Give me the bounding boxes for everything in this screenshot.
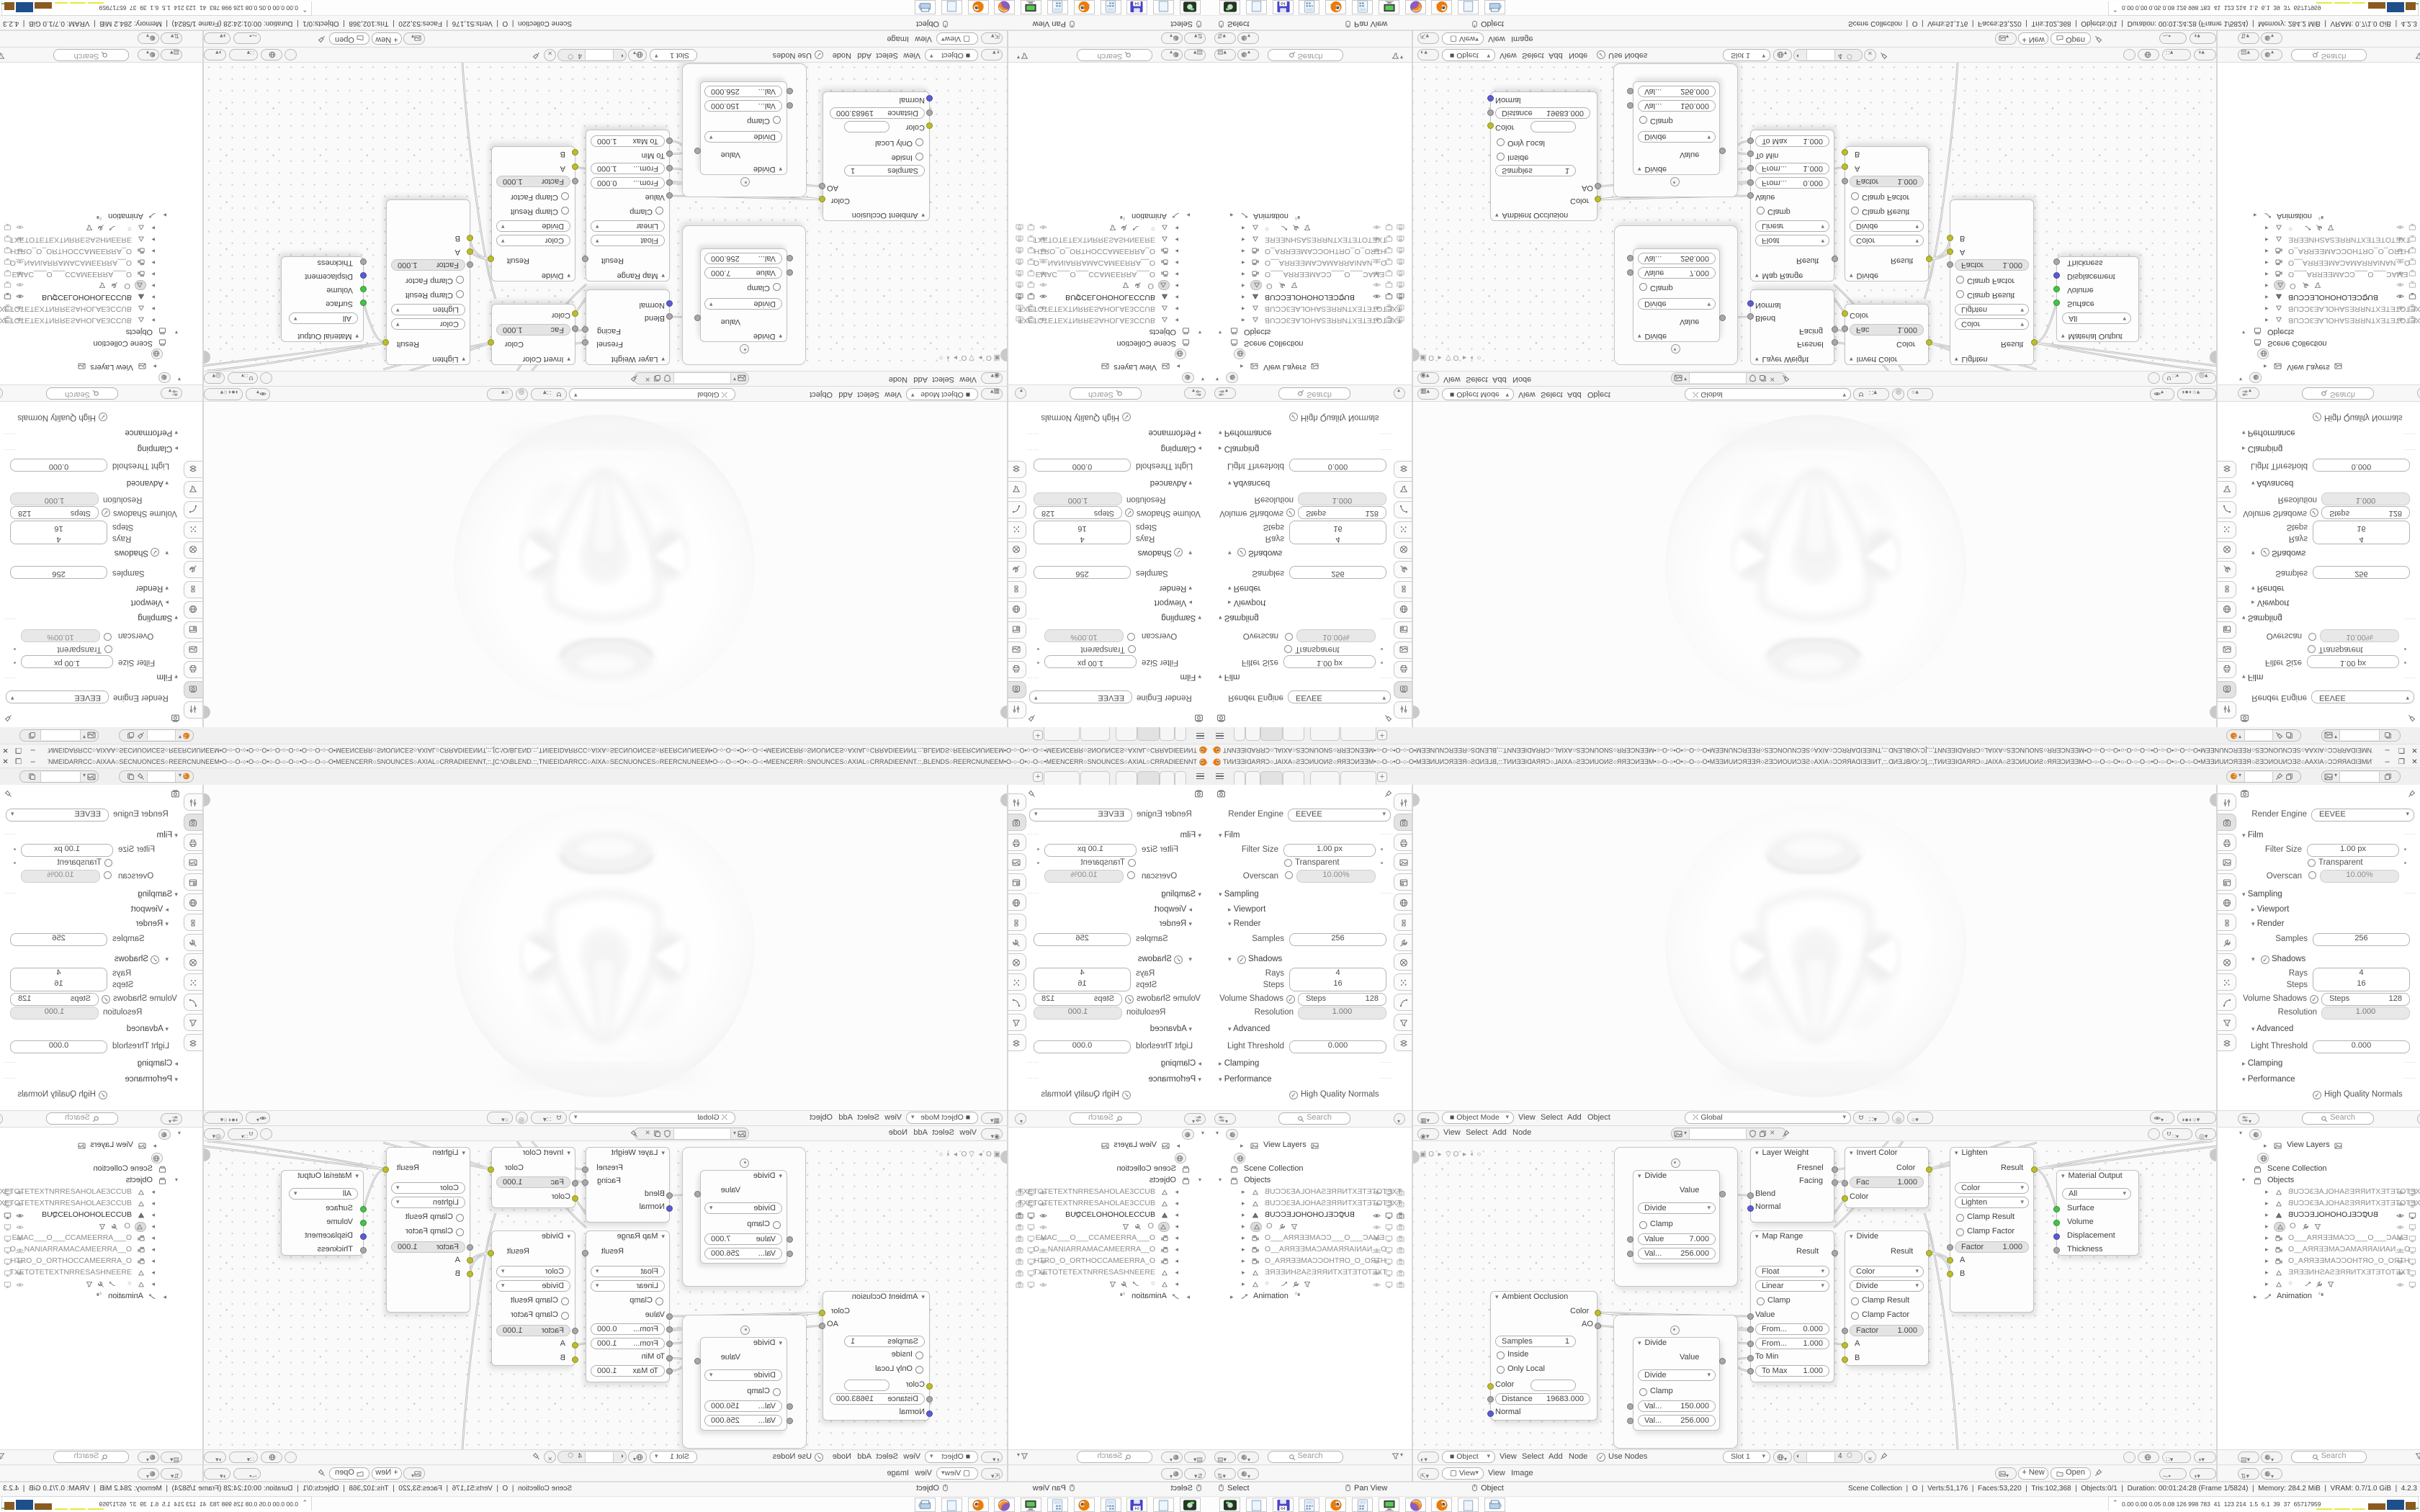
svg-text:64: 64 — [1135, 1, 1139, 5]
svg-text:64: 64 — [1281, 1, 1285, 5]
svg-text:64: 64 — [1135, 1507, 1139, 1511]
svg-text:64: 64 — [1281, 1507, 1285, 1511]
